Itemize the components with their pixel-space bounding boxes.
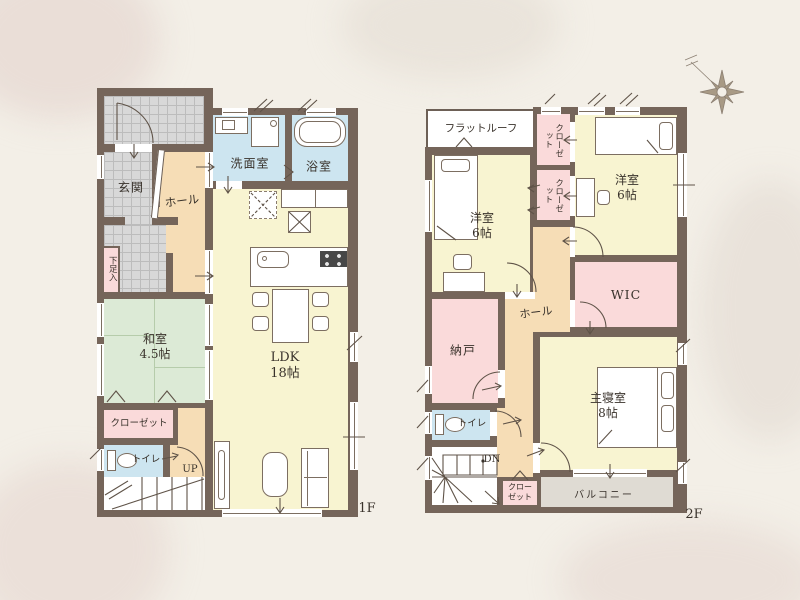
closet-bottom-label: クローゼット (507, 483, 534, 504)
western-room-right-label: 洋室 6帖 (615, 173, 639, 203)
wall (104, 217, 125, 225)
window (425, 456, 432, 480)
closet-top-label: クローゼット (542, 122, 563, 159)
window (306, 108, 336, 116)
kitchen-cabinet-icon (315, 190, 316, 207)
pillow-icon (441, 159, 470, 172)
japanese-room-size: 4.5帖 (139, 347, 170, 362)
window (615, 107, 640, 115)
compass-rose-icon (685, 55, 744, 114)
sofa-icon (301, 448, 329, 508)
hall-room (166, 225, 173, 253)
washroom-label: 洗面室 (230, 157, 269, 172)
window (97, 155, 104, 179)
wic-label: WIC (611, 287, 641, 303)
pillow-icon (661, 372, 674, 399)
bathtub-icon (299, 121, 341, 143)
door-opening (490, 412, 497, 436)
hall-room (160, 152, 205, 225)
window (97, 449, 104, 471)
tv-board-icon (218, 450, 225, 500)
flat-roof-label: フラットルーフ (445, 122, 518, 135)
window (678, 153, 687, 217)
western-room-left-size: 6帖 (470, 226, 494, 241)
pantry-box-icon (288, 211, 311, 233)
floor2-caption: 2F (685, 507, 702, 523)
entrance-porch (104, 96, 204, 144)
chair-icon (312, 292, 329, 307)
master-bedroom-label: 主寝室 8帖 (590, 391, 626, 421)
chair-icon (453, 254, 472, 270)
hall-room (497, 408, 533, 477)
door-opening (570, 122, 575, 162)
floor1-caption: 1F (358, 501, 375, 517)
pillow-icon (659, 122, 673, 150)
shoe-cupboard-label: 下足入 (108, 248, 117, 290)
master-bedroom-name: 主寝室 (590, 391, 626, 406)
window (97, 344, 104, 396)
ldk-name: LDK (270, 350, 300, 366)
western-room-right-name: 洋室 (615, 173, 639, 188)
vanity-sink-icon (222, 120, 235, 130)
window (425, 180, 432, 232)
stairs-up-label: UP (182, 464, 197, 477)
chair-icon (312, 316, 329, 331)
western-room-left-name: 洋室 (470, 211, 494, 226)
stove-icon (320, 251, 347, 267)
sliding-door (205, 304, 213, 346)
storage-room-label: 納戸 (450, 344, 476, 359)
door-opening (570, 227, 575, 257)
closet-label: クローゼット (110, 418, 167, 430)
chair-icon (252, 316, 269, 331)
bathroom-label: 浴室 (306, 160, 332, 175)
window (678, 462, 687, 484)
pillow-icon (661, 405, 674, 432)
door-opening (570, 300, 575, 327)
chair-icon (597, 190, 610, 205)
door-opening (498, 370, 505, 398)
western-room-left-label: 洋室 6帖 (470, 211, 494, 241)
window (350, 332, 358, 362)
toilet-icon (107, 450, 116, 471)
tatami-line (154, 367, 205, 368)
window (222, 108, 248, 116)
door-opening (570, 176, 575, 216)
watermark-blob (340, 0, 560, 80)
window (578, 107, 605, 115)
desk-icon (576, 178, 595, 217)
sliding-door (205, 350, 213, 400)
window (573, 469, 647, 477)
sliding-door (205, 250, 213, 294)
window (97, 303, 104, 337)
floor-plan-image: 玄関 下足入 ホール 洗面室 浴室 LDK 18帖 和室 4.5帖 クローゼット… (0, 0, 800, 600)
japanese-room-name: 和室 (139, 332, 170, 347)
western-room-right-size: 6帖 (615, 188, 639, 203)
chair-icon (252, 292, 269, 307)
watermark-blob (560, 520, 800, 600)
desk-icon (443, 272, 485, 292)
staircase (104, 477, 205, 510)
hall-room (170, 445, 178, 477)
entrance-label: 玄関 (118, 181, 144, 196)
hall-room (173, 225, 205, 292)
sofa-icon (307, 451, 308, 506)
ldk-size: 18帖 (270, 366, 300, 382)
dining-table-icon (272, 289, 309, 343)
coffee-table-icon (262, 452, 288, 497)
toilet-icon (435, 414, 444, 435)
door-opening (505, 292, 535, 299)
closet-middle-label: クローゼット (542, 177, 563, 214)
stairs-down-label: DN (484, 454, 501, 467)
window (678, 343, 687, 365)
balcony-label: バルコニー (574, 490, 634, 503)
watermark-blob (700, 180, 800, 440)
door-opening (115, 144, 152, 152)
door-opening (533, 443, 540, 473)
ldk-label: LDK 18帖 (270, 350, 300, 383)
refrigerator-space (249, 191, 277, 219)
kitchen-sink-icon (262, 256, 267, 261)
double-bed-icon (657, 368, 658, 447)
window (350, 402, 358, 470)
window (425, 412, 432, 434)
toilet-label: トイレ (458, 418, 487, 430)
door-opening (216, 181, 242, 189)
washing-machine-icon (270, 120, 277, 127)
sliding-door (205, 152, 213, 188)
toilet-label: トイレ (132, 454, 161, 466)
japanese-room-label: 和室 4.5帖 (139, 332, 170, 362)
window (425, 366, 432, 394)
window (541, 107, 561, 115)
master-bedroom-size: 8帖 (590, 406, 626, 421)
window (222, 509, 322, 517)
